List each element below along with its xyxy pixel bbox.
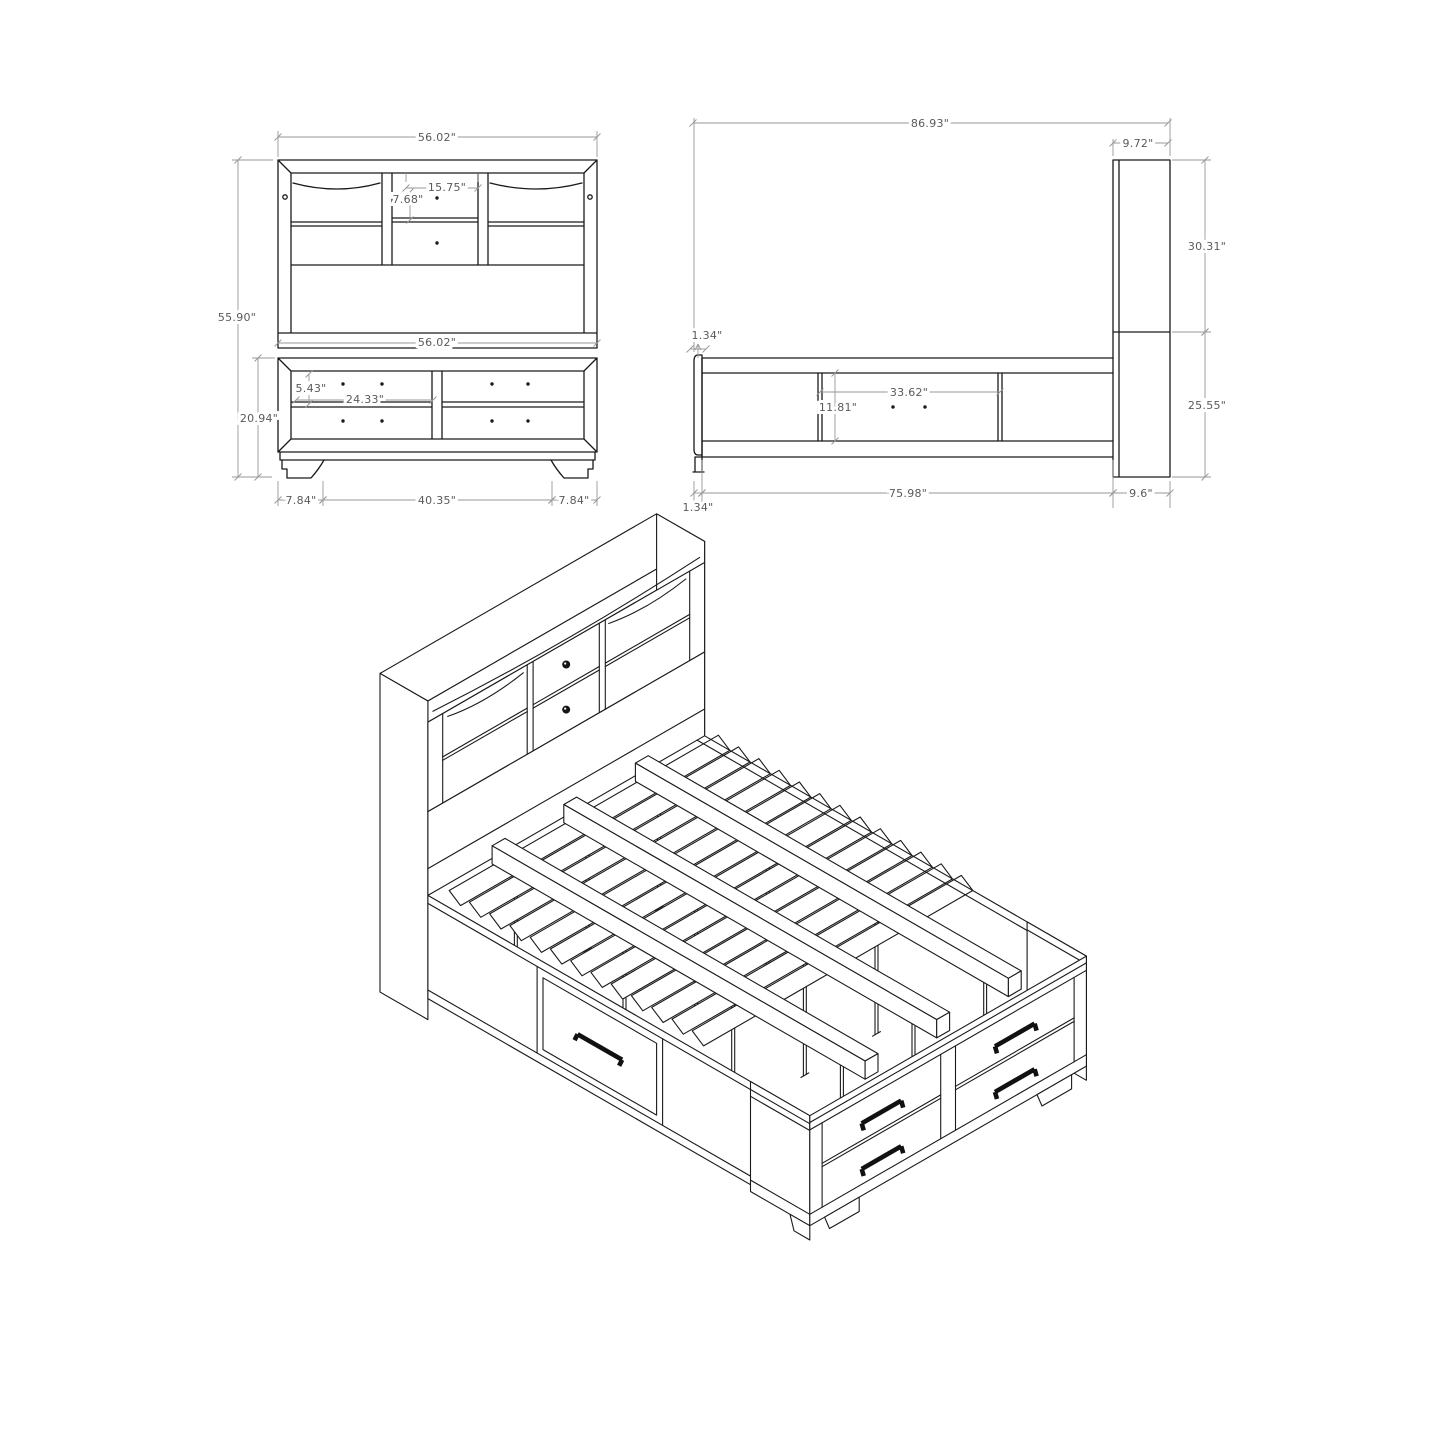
dim-rail-width: 56.02" — [418, 336, 456, 349]
side-rail-band — [702, 358, 1113, 457]
drawer-dot — [435, 196, 438, 199]
dim-rail-length: 75.98" — [889, 487, 927, 500]
dim-footboard-top-thickness: 1.34" — [691, 329, 722, 342]
dim-footboard-bottom-thickness: 1.34" — [682, 501, 713, 514]
dim-foot-span: 40.35" — [418, 494, 456, 507]
dim-overall-height: 55.90" — [218, 311, 256, 324]
dim-left-foot-offset: 7.84" — [285, 494, 316, 507]
isometric-assembly-view — [380, 514, 1086, 1240]
dim-headboard-upper-height: 30.31" — [1188, 240, 1226, 253]
drawer-dot — [891, 405, 894, 408]
dim-right-foot-offset: 7.84" — [558, 494, 589, 507]
pilot-hole-left — [283, 195, 287, 199]
footboard-side-profile — [693, 355, 704, 472]
dim-drawer-face-height: 5.43" — [295, 382, 326, 395]
dimension-labels: 56.02" 55.90" 56.02" 15.75" 7.68" 5.43" … — [218, 117, 1226, 514]
knob-highlight — [564, 662, 566, 664]
knob-icon — [562, 661, 570, 669]
footboard-left-side — [751, 1082, 810, 1226]
dim-side-drawer-height: 11.81" — [819, 401, 857, 414]
drawer-dot — [923, 405, 926, 408]
side-elevation-view — [693, 160, 1170, 477]
dim-overall-width: 56.02" — [418, 131, 456, 144]
dim-hutch-drawer-height: 7.68" — [392, 193, 423, 206]
dimension-lines — [232, 118, 1211, 508]
knob-icon — [562, 706, 570, 714]
edge — [801, 1073, 809, 1078]
headboard-left-side — [380, 673, 428, 1019]
front-elevation-view — [278, 160, 597, 478]
bracket-feet — [282, 460, 593, 478]
knob-highlight — [564, 708, 566, 710]
edge — [873, 1032, 881, 1037]
dim-side-drawer-width: 33.62" — [890, 386, 928, 399]
furniture-dimension-drawing: 56.02" 55.90" 56.02" 15.75" 7.68" 5.43" … — [0, 0, 1445, 1445]
pilot-hole-right — [588, 195, 592, 199]
storage-base-outline — [278, 358, 597, 460]
drawing-sheet: 56.02" 55.90" 56.02" 15.75" 7.68" 5.43" … — [0, 0, 1445, 1445]
headboard-side-outline — [1113, 160, 1170, 477]
dim-drawer-face-width: 24.33" — [346, 393, 384, 406]
dim-headboard-lower-height: 25.55" — [1188, 399, 1226, 412]
dim-storage-unit-height: 20.94" — [240, 412, 278, 425]
dim-overall-length: 86.93" — [911, 117, 949, 130]
dim-headboard-base-depth: 9.6" — [1129, 487, 1153, 500]
dim-hutch-center-width: 15.75" — [428, 181, 466, 194]
dim-headboard-depth: 9.72" — [1122, 137, 1153, 150]
drawer-dot — [435, 241, 438, 244]
